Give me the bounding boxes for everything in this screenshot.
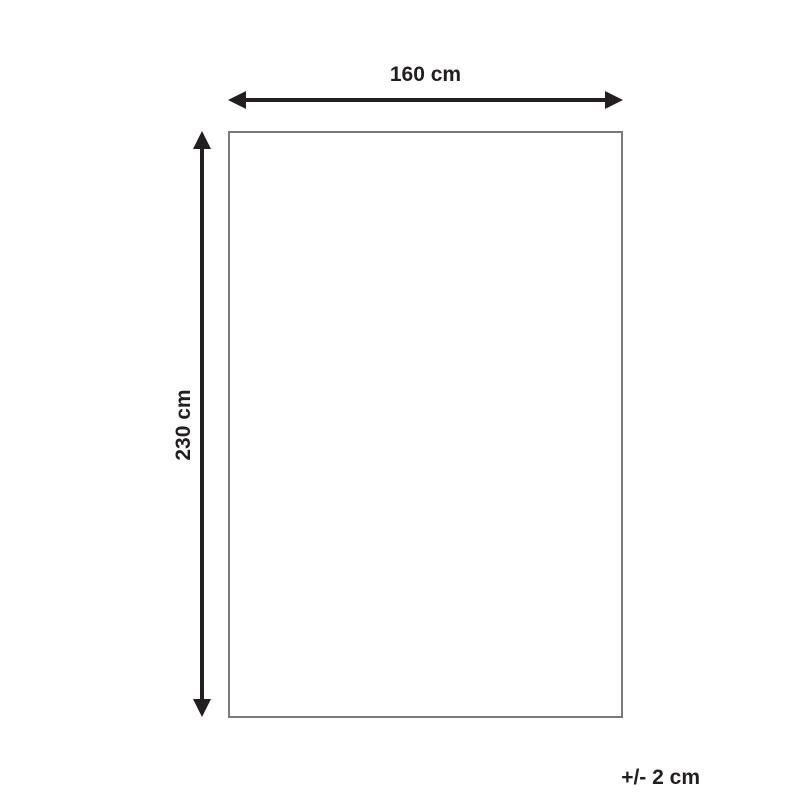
width-dimension-label: 160 cm (228, 62, 623, 88)
tolerance-label: +/- 2 cm (600, 765, 700, 791)
product-outline-rectangle (228, 131, 623, 718)
horizontal-dimension-arrow-icon (228, 91, 623, 109)
height-dimension-label: 230 cm (171, 345, 197, 505)
dimension-diagram: 160 cm 230 cm +/- 2 cm (0, 0, 800, 800)
